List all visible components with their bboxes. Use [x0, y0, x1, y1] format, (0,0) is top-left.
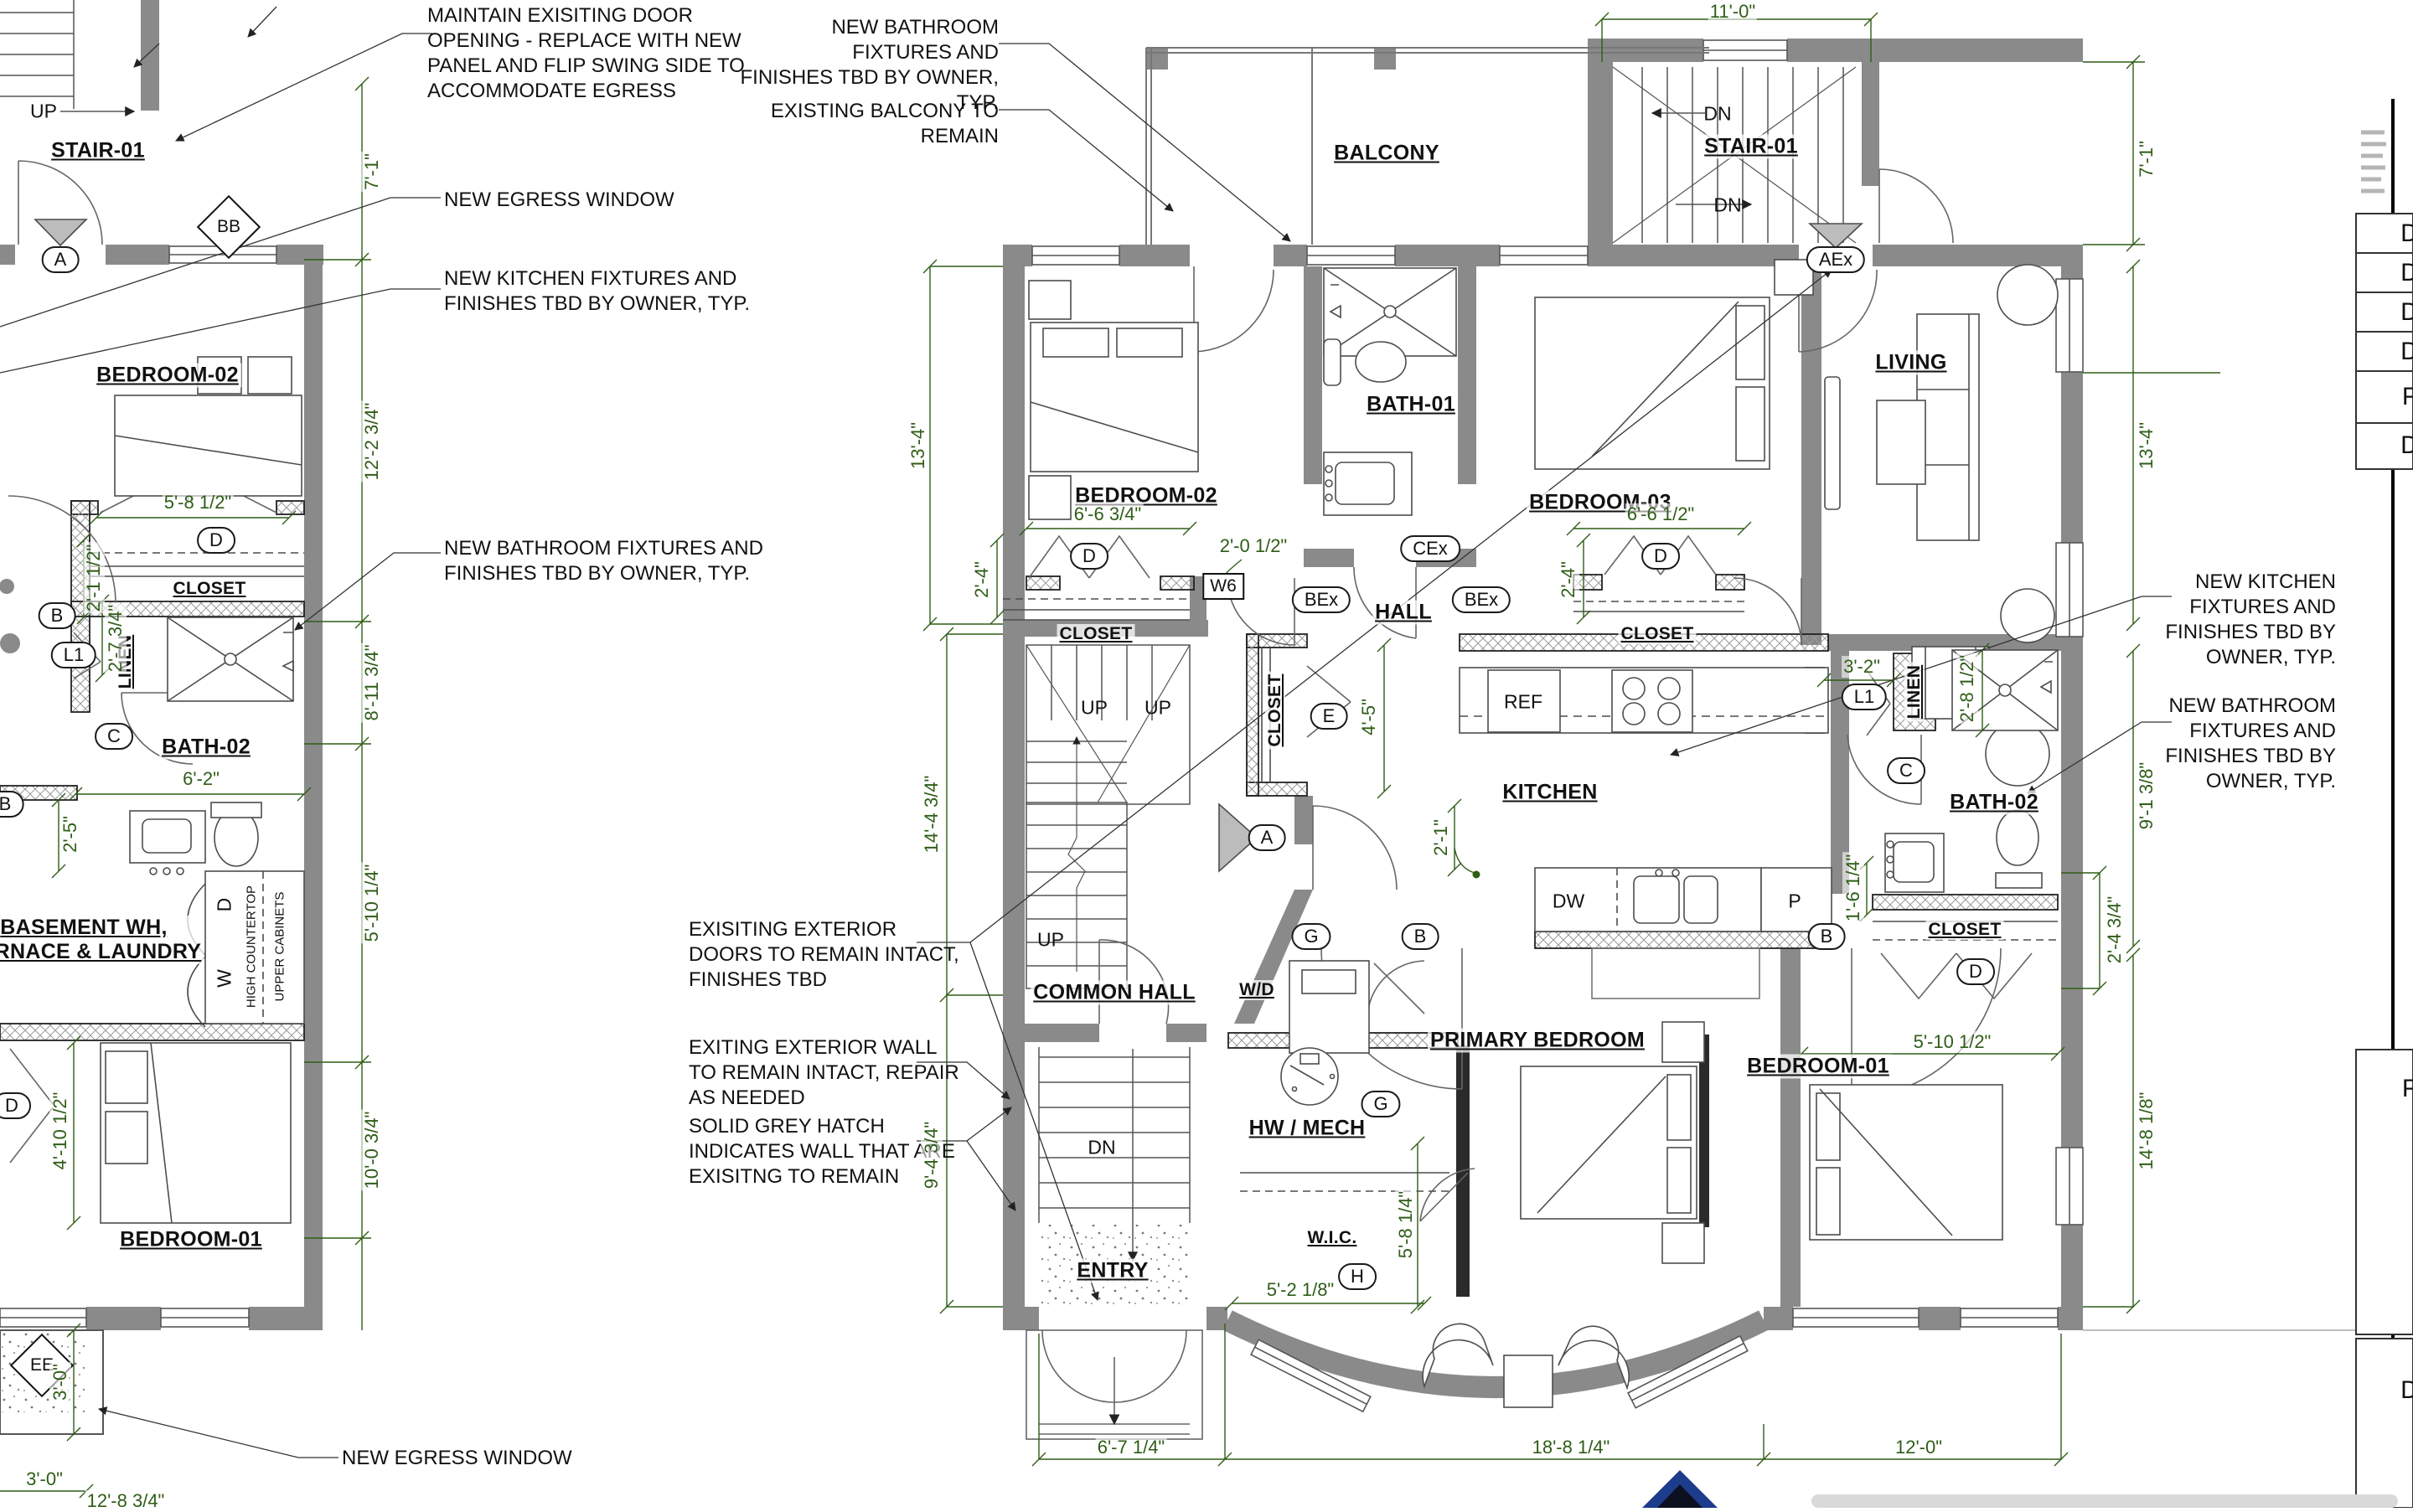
titleblock-letter-2: D — [2400, 259, 2413, 287]
dim-2-4-b2: 2'-4" — [971, 560, 993, 600]
dim-9-1: 9'-1 3/8" — [2136, 761, 2157, 832]
door-marker-d-closetB3: D — [1641, 543, 1680, 570]
dim-2-4t: 2'-4 3/4" — [2104, 895, 2126, 966]
room-closet-b3: CLOSET — [1619, 624, 1697, 644]
room-balcony: BALCONY — [1331, 142, 1442, 166]
stair-up-3: UP — [1037, 929, 1064, 952]
door-marker-d-closetB2: D — [1070, 543, 1108, 570]
room-bedroom01-left: BEDROOM-01 — [117, 1228, 265, 1252]
dim-12-0: 12'-0" — [1894, 1437, 1944, 1458]
room-hall: HALL — [1372, 601, 1434, 625]
titleblock-letter-7: F — [2402, 1075, 2413, 1103]
door-marker-b-edge: B — [0, 791, 23, 818]
dim-3-2: 3'-2" — [1842, 656, 1882, 678]
room-stair01-right: STAIR-01 — [1702, 135, 1801, 159]
room-wic: W.I.C. — [1305, 1228, 1360, 1248]
titleblock-letter-1: D — [2400, 219, 2413, 248]
dim-7-1-left: 7'-1" — [361, 152, 383, 192]
room-basement: BASEMENT WH, FURNACE & LAUNDRY — [0, 916, 204, 964]
door-marker-g-1: G — [1291, 923, 1331, 950]
fixture-ref: REF — [1504, 691, 1542, 714]
fixture-dw: DW — [1553, 890, 1584, 913]
note-grey-hatch: SOLID GREY HATCH INDICATES WALL THAT ARE… — [689, 1114, 955, 1189]
dim-2-1: 2'-1" — [1430, 818, 1452, 858]
titleblock-letter-3: D — [2400, 298, 2413, 327]
note-ext-wall: EXITING EXTERIOR WALL TO REMAIN INTACT, … — [689, 1035, 959, 1111]
door-marker-d-closetL: D — [197, 527, 235, 554]
dim-14-8: 14'-8 1/8" — [2136, 1091, 2157, 1172]
door-marker-a-left: A — [42, 246, 80, 273]
titleblock-letter-4: D — [2400, 338, 2413, 366]
room-entry: ENTRY — [1074, 1259, 1150, 1283]
door-marker-cex: CEx — [1400, 535, 1460, 562]
dim-3-0-h: 3'-0" — [24, 1468, 65, 1490]
note-ext-doors: EXISITING EXTERIOR DOORS TO REMAIN INTAC… — [689, 917, 959, 993]
note-maintain-door: MAINTAIN EXISITING DOOR OPENING - REPLAC… — [427, 3, 745, 104]
room-bath02-left: BATH-02 — [159, 735, 253, 760]
titleblock-letter-8: D — [2400, 1376, 2413, 1405]
dim-10-0: 10'-0 3/4" — [361, 1110, 383, 1191]
dim-7-1-right: 7'-1" — [2136, 139, 2157, 179]
dim-9-4: 9'-4 3/4" — [921, 1120, 943, 1191]
door-marker-d-closetB01: D — [1956, 958, 1995, 985]
dim-4-5: 4'-5" — [1358, 697, 1380, 737]
plan-drawing — [0, 0, 2413, 1508]
note-egress-bottom: NEW EGRESS WINDOW — [342, 1446, 572, 1471]
dim-2-0h: 2'-0 1/2" — [1218, 535, 1289, 557]
door-marker-bex-2: BEx — [1452, 586, 1511, 613]
room-hw-mech: HW / MECH — [1247, 1117, 1368, 1141]
dim-2-5: 2'-5" — [59, 814, 81, 854]
room-closet-hall: CLOSET — [1265, 672, 1285, 750]
dim-12-2: 12'-2 3/4" — [361, 401, 383, 482]
note-kitchen-right: NEW KITCHEN FIXTURES AND FINISHES TBD BY… — [2145, 570, 2336, 670]
note-egress-top: NEW EGRESS WINDOW — [444, 188, 674, 213]
dim-6-2: 6'-2" — [181, 768, 221, 790]
door-marker-l1-right: L1 — [1842, 684, 1887, 710]
logo-diamond — [1642, 1470, 1718, 1508]
titleblock-letter-6: D — [2400, 431, 2413, 460]
door-marker-b-kitchen: B — [1402, 923, 1439, 950]
door-marker-aex: AEx — [1806, 246, 1865, 273]
door-marker-l1-left: L1 — [51, 642, 96, 668]
stair-dn-entry: DN — [1088, 1137, 1115, 1159]
door-marker-c-left: C — [95, 723, 133, 750]
room-closet-b01: CLOSET — [1926, 920, 2004, 940]
dim-5-10h: 5'-10 1/2" — [1912, 1031, 1993, 1053]
stair-up-1: UP — [1081, 697, 1108, 720]
dim-6-6t: 6'-6 3/4" — [1072, 503, 1144, 525]
room-stair01-left: STAIR-01 — [49, 139, 147, 163]
room-bedroom01: BEDROOM-01 — [1744, 1055, 1892, 1079]
dim-11-0: 11'-0" — [1708, 1, 1757, 23]
door-marker-b-left: B — [39, 602, 76, 629]
dim-18-8: 18'-8 1/4" — [1531, 1437, 1612, 1458]
horizontal-scrollbar[interactable] — [1811, 1494, 2398, 1508]
dim-2-4-b3: 2'-4" — [1558, 560, 1579, 600]
room-bath01: BATH-01 — [1364, 393, 1458, 417]
dim-5-8q: 5'-8 1/4" — [1395, 1189, 1417, 1261]
note-kitchen-left: NEW KITCHEN FIXTURES AND FINISHES TBD BY… — [444, 266, 750, 317]
room-common-hall: COMMON HALL — [1031, 981, 1198, 1005]
door-marker-d-edge: D — [0, 1092, 31, 1119]
stair-up-2: UP — [1144, 697, 1171, 720]
fixture-dryer: D — [214, 898, 236, 912]
room-closet-left: CLOSET — [171, 579, 249, 599]
dim-6-6h: 6'-6 1/2" — [1625, 503, 1697, 525]
room-bath02-right: BATH-02 — [1947, 791, 2041, 815]
dim-6-7: 6'-7 1/4" — [1096, 1437, 1167, 1458]
fixture-high-countertop: HIGH COUNTERTOP — [245, 885, 259, 1008]
dim-1-6: 1'-6 1/4" — [1842, 853, 1864, 924]
room-kitchen: KITCHEN — [1500, 781, 1599, 805]
dim-13-4-right: 13'-4" — [2136, 421, 2157, 471]
fixture-pantry: P — [1788, 890, 1801, 913]
dim-2-1h: 2'-1 1/2" — [83, 543, 105, 614]
dim-5-10q: 5'-10 1/4" — [361, 863, 383, 944]
door-marker-b-bath: B — [1808, 923, 1846, 950]
room-bedroom02-left: BEDROOM-02 — [94, 364, 241, 388]
door-marker-h: H — [1338, 1263, 1377, 1290]
note-existing-balcony: EXISTING BALCONY TO REMAIN — [737, 99, 999, 149]
dim-13-4-left: 13'-4" — [907, 421, 929, 471]
door-marker-g-2: G — [1361, 1091, 1400, 1117]
door-marker-bex-1: BEx — [1292, 586, 1351, 613]
titleblock-letter-5: F — [2402, 383, 2413, 411]
dim-4-10: 4'-10 1/2" — [49, 1091, 71, 1172]
dim-14-4: 14'-4 3/4" — [921, 774, 943, 855]
stair-dn-1: DN — [1703, 103, 1731, 126]
fixture-washer: W — [214, 969, 236, 988]
door-marker-e: E — [1310, 703, 1348, 730]
stair-up-left: UP — [30, 101, 57, 123]
room-living: LIVING — [1873, 351, 1949, 375]
dim-8-11: 8'-11 3/4" — [361, 642, 383, 722]
room-closet-b2: CLOSET — [1057, 624, 1135, 644]
room-wd: W/D — [1237, 980, 1277, 1000]
dim-2-8h: 2'-8 1/2" — [1956, 653, 1978, 725]
stair-dn-2: DN — [1713, 194, 1741, 217]
wall-tag-w6: W6 — [1202, 573, 1244, 600]
dim-2-7: 2'-7 3/4" — [105, 603, 127, 674]
door-marker-c-right: C — [1887, 757, 1925, 784]
note-bath-right: NEW BATHROOM FIXTURES AND FINISHES TBD B… — [2145, 694, 2336, 794]
door-marker-a-main: A — [1248, 824, 1286, 851]
dimension-lines — [0, 13, 2413, 1498]
floor-plan-page: { "ann": { "maintain": "MAINTAIN EXISITI… — [0, 0, 2413, 1508]
dim-12-8: 12'-8 3/4" — [85, 1490, 167, 1512]
note-bath-left: NEW BATHROOM FIXTURES AND FINISHES TBD B… — [444, 536, 763, 586]
room-linen-right: LINEN — [1904, 663, 1925, 722]
dim-5-8h: 5'-8 1/2" — [163, 492, 234, 513]
fixture-upper-cabinets: UPPER CABINETS — [273, 892, 287, 1002]
dim-3-0-v: 3'-0" — [49, 1362, 71, 1402]
room-primary: PRIMARY BEDROOM — [1428, 1029, 1647, 1053]
dim-5-2: 5'-2 1/8" — [1265, 1279, 1336, 1301]
